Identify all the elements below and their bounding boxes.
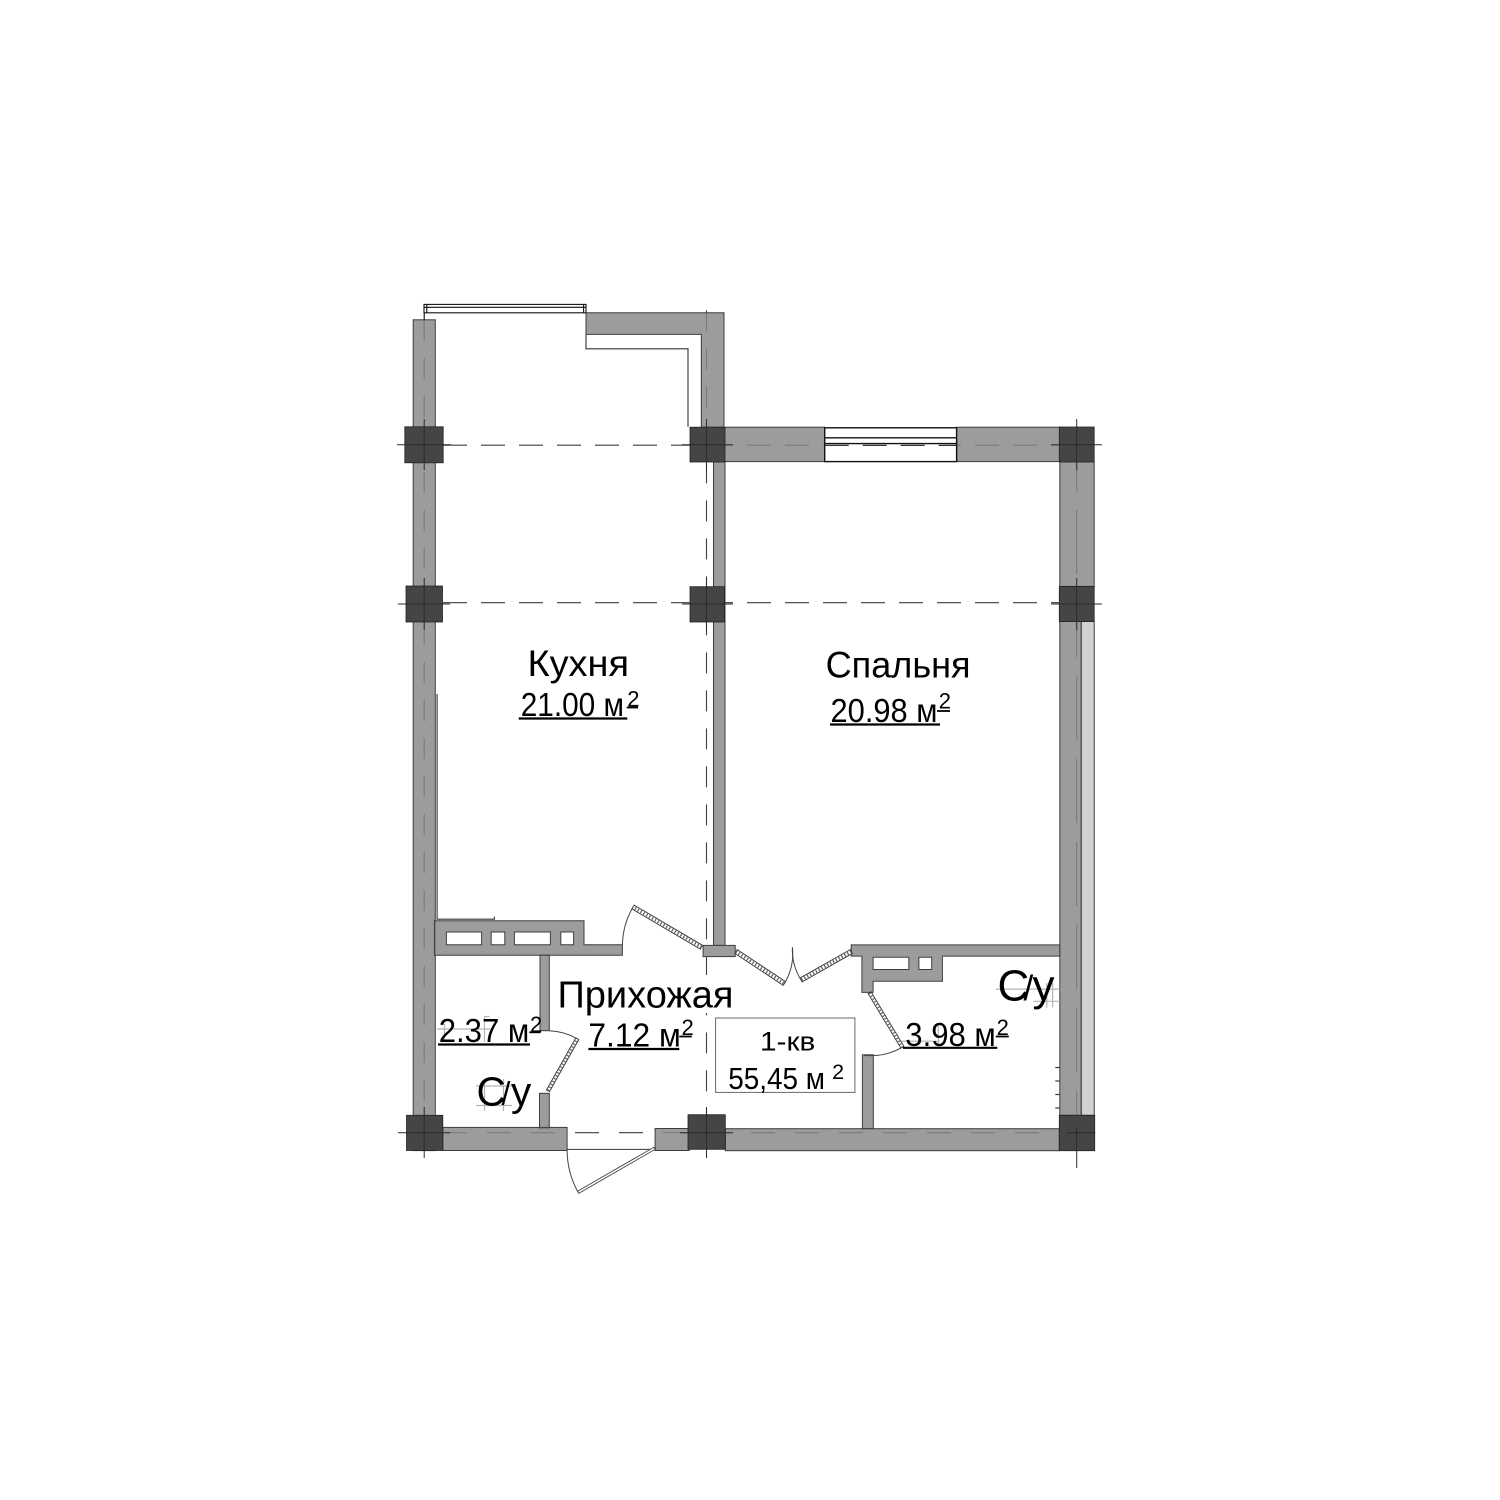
svg-text:у: у [1033,962,1055,1011]
svg-text:/: / [502,1075,511,1111]
svg-text:Спальня: Спальня [826,644,971,685]
svg-text:2: 2 [832,1060,844,1084]
svg-text:2: 2 [530,1012,542,1037]
svg-text:у: у [511,1068,532,1114]
svg-text:2: 2 [939,689,951,714]
svg-text:Кухня: Кухня [528,643,630,684]
svg-text:Прихожая: Прихожая [558,974,734,1016]
svg-text:55,45 м: 55,45 м [728,1062,825,1096]
svg-text:1-кв: 1-кв [760,1026,815,1056]
